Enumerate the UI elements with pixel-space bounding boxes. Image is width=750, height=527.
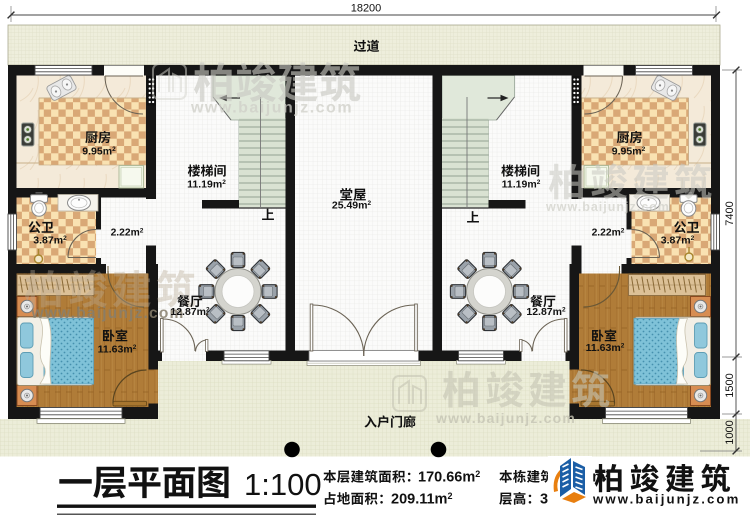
svg-text:2.22m2: 2.22m2 — [592, 227, 625, 238]
svg-text:25.49m2: 25.49m2 — [332, 200, 372, 212]
svg-text:11.19m2: 11.19m2 — [187, 179, 226, 191]
svg-text:9.95m2: 9.95m2 — [82, 146, 116, 158]
svg-text:11.63m2: 11.63m2 — [586, 342, 625, 354]
svg-text:www.baijunjz.com: www.baijunjz.com — [31, 305, 185, 322]
svg-text:12.87m2: 12.87m2 — [526, 306, 566, 318]
svg-text:170.66m2: 170.66m2 — [418, 469, 480, 486]
svg-text:1000: 1000 — [724, 420, 736, 444]
svg-text:7400: 7400 — [724, 201, 736, 225]
svg-text:11.63m2: 11.63m2 — [98, 344, 137, 356]
svg-text:2.22m2: 2.22m2 — [111, 227, 144, 238]
svg-text:www.baijunjz.com: www.baijunjz.com — [435, 410, 576, 426]
svg-text:1500: 1500 — [724, 373, 736, 397]
svg-text:3.87m2: 3.87m2 — [661, 235, 695, 247]
svg-text:www.baijunjz.com: www.baijunjz.com — [545, 200, 670, 214]
svg-text:12.87m2: 12.87m2 — [170, 306, 210, 318]
svg-text:11.19m2: 11.19m2 — [502, 179, 541, 191]
svg-text:www.baijunjz.com: www.baijunjz.com — [190, 100, 353, 117]
svg-text:18200: 18200 — [351, 3, 382, 15]
svg-text:www.baijunjz.com: www.baijunjz.com — [592, 492, 740, 507]
svg-text:3.87m2: 3.87m2 — [33, 235, 67, 247]
svg-text:9.95m2: 9.95m2 — [612, 146, 646, 158]
svg-text:1:100: 1:100 — [244, 467, 322, 502]
svg-text:209.11m2: 209.11m2 — [391, 491, 452, 508]
